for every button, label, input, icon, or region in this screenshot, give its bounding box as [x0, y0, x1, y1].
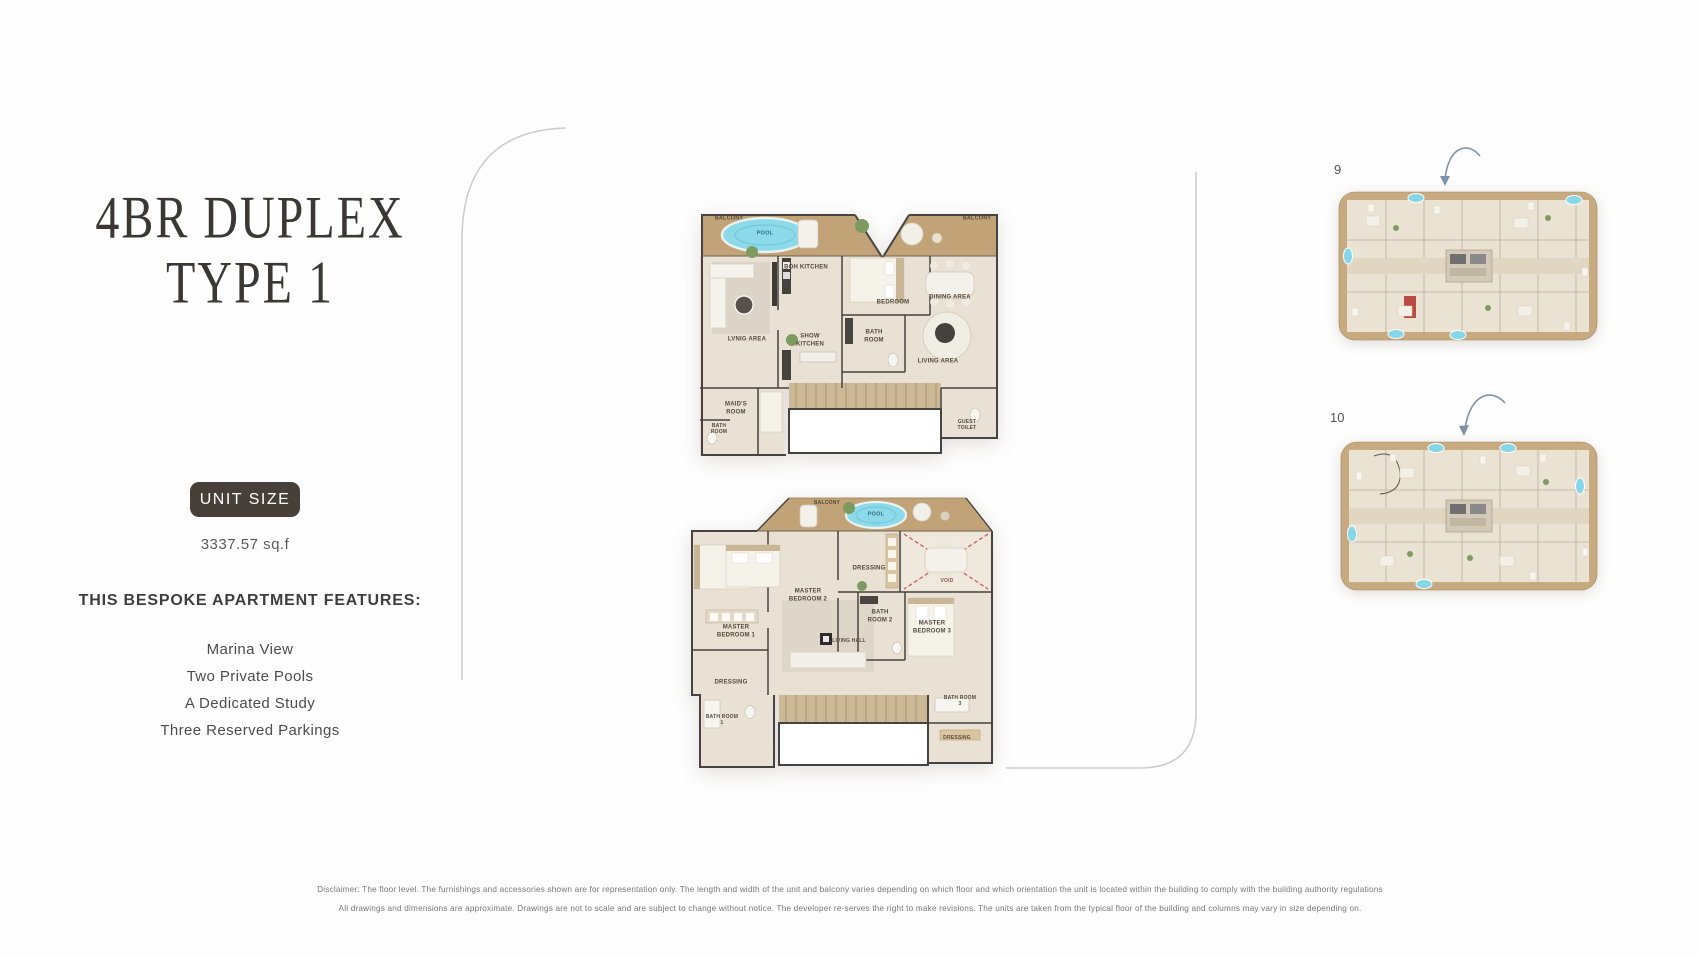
room-label-maids-room: MAID'S ROOM [716, 402, 756, 417]
room-label-bath-room-3: BATH ROOM 3 [943, 695, 977, 708]
feature-item: Three Reserved Parkings [85, 722, 415, 749]
stair-void [789, 409, 941, 453]
room-label-void: VOID [932, 578, 962, 584]
stair-void [779, 723, 928, 765]
room-label-bath-room: BATH ROOM [857, 330, 891, 345]
brochure-page: 4BR DUPLEX TYPE 1 UNIT SIZE 3337.57 sq.f… [0, 0, 1700, 957]
room-label-bath-room-1: BATH ROOM 1 [705, 714, 739, 727]
page-title: 4BR DUPLEX TYPE 1 [60, 186, 440, 316]
feature-item: Marina View [85, 641, 415, 668]
decorative-curve-left [462, 128, 566, 680]
floor-plate-10-plan [1340, 438, 1600, 594]
room-label-pool-upper: POOL [745, 231, 785, 238]
room-label-balcony-lower: BALCONY [797, 500, 857, 506]
room-label-bath-room-2: BATH ROOM 2 [862, 610, 898, 625]
room-label-balcony-left: BALCONY [699, 216, 759, 223]
disclaimer-line-1: Disclaimer: The floor level. The furnish… [0, 885, 1700, 894]
floor-plate-10-label: 10 [1330, 410, 1344, 425]
room-label-master-bedroom-3: MASTER BEDROOM 3 [904, 621, 960, 636]
room-label-show-kitchen: SHOW KITCHEN [787, 334, 833, 349]
features-list: Marina View Two Private Pools A Dedicate… [85, 641, 415, 749]
features-heading: THIS BESPOKE APARTMENT FEATURES: [50, 592, 450, 610]
room-label-pool-lower: POOL [856, 512, 896, 519]
room-label-guest-toilet: GUEST TOILET [950, 419, 984, 432]
room-label-dressing-right: DRESSING [935, 735, 979, 741]
room-label-living-area: LIVING AREA [898, 358, 978, 366]
decorative-curve-right [1006, 172, 1196, 768]
title-line-2: TYPE 1 [60, 251, 440, 316]
room-label-boh-kitchen: BOH KITCHEN [783, 264, 829, 272]
feature-item: A Dedicated Study [85, 695, 415, 722]
room-label-living-hall: LIVING HALL [832, 638, 866, 644]
curved-arrow-icon-plate-9 [1440, 148, 1480, 186]
room-label-lvnig-area: LVNIG AREA [727, 336, 767, 344]
floor-plate-9-label: 9 [1334, 162, 1341, 177]
room-label-dressing-top: DRESSING [844, 565, 894, 573]
curved-arrow-icon-plate-10 [1459, 395, 1505, 436]
room-label-master-bedroom-1: MASTER BEDROOM 1 [708, 625, 764, 640]
disclaimer-line-2: All drawings and dimensions are approxim… [0, 904, 1700, 913]
unit-size-badge: UNIT SIZE [190, 482, 300, 517]
room-label-dining-area: DINING AREA [910, 294, 990, 302]
title-line-1: 4BR DUPLEX [60, 186, 440, 251]
room-label-dressing-left: DRESSING [706, 679, 756, 687]
unit-size-value: 3337.57 sq.f [130, 536, 360, 553]
room-label-balcony-right: BALCONY [947, 216, 1007, 223]
room-label-master-bedroom-2: MASTER BEDROOM 2 [780, 589, 836, 604]
floor-plate-9-plan [1338, 188, 1600, 344]
feature-item: Two Private Pools [85, 668, 415, 695]
room-label-maid-bath-room: BATH ROOM [704, 423, 734, 436]
